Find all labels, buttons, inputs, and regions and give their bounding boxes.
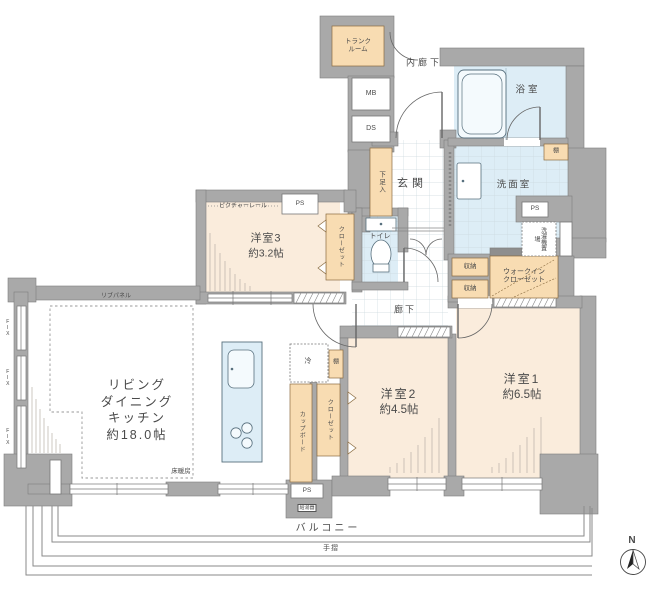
mb-label: MB [366,90,377,98]
trunk-room-label: トランクルーム [345,38,371,54]
bedroom2-size: 約4.5帖 [380,404,419,418]
balcony-label: バルコニー [296,523,361,535]
walk-in-closet-label: ウォークインクローゼット [503,269,545,286]
toilet-label: トイレ [370,233,391,241]
rib-panel-label: リブパネル [101,293,131,300]
corner-slot [50,460,61,494]
ldk-label: リビングダイニング キッチン約18.0帖 [101,377,174,443]
storage-label-2: 収納 [464,285,477,293]
bedroom1-name: 洋室1 [504,372,541,386]
water-heater-label: 給湯器 [297,504,316,512]
compass [621,550,646,575]
stove-burners [242,438,252,448]
fix-window-label-2: FIX [4,367,10,389]
inner-corridor-label: 内廊下 [406,58,442,69]
shoe-cabinet-label: 下足入 [377,162,384,202]
bedroom3-size: 約3.2帖 [248,248,284,261]
front-door-arc [396,92,442,138]
fix-window-label-1: FIX [4,317,10,339]
fridge-label: 冷 [305,358,312,366]
shelf-upper-label: 棚 [553,148,559,155]
bedroom1-size: 約6.5帖 [503,389,542,403]
shelf-lower-label: 棚 [333,359,339,366]
handrail-label: 手摺 [323,545,339,553]
bedroom2-name: 洋室2 [381,387,418,401]
floor-plan: トランクルーム 内廊下 MB DS 玄関 下足入 浴室 洗面室 棚 PS 洗濯機… [0,0,650,600]
bathtub [458,68,506,140]
closet-bedroom3-label: クローゼット [337,222,344,272]
storage-label-1: 収納 [464,263,477,271]
entrance-label: 玄関 [397,177,427,190]
ds-label: DS [366,125,376,133]
floor-plan-svg [0,0,650,600]
closet-bedroom2-label: クローゼット [326,395,333,445]
bedroom3-name: 洋室3 [250,232,281,245]
picture-rail-label: ピクチャーレール [219,203,267,210]
kitchen-island [222,342,262,462]
cupboard-label: カップボード [298,402,305,462]
counter-strip [560,222,572,256]
ps-bedroom3-label: PS [296,200,305,208]
ps-washroom-label: PS [531,205,540,213]
ps-bottom-label: PS [303,487,312,495]
bathroom-label: 浴室 [515,84,540,95]
fix-window-label-3: FIX [4,426,10,448]
washbasin [457,163,481,199]
washroom-label: 洗面室 [497,179,532,190]
compass-north-label: N [628,535,635,547]
hall-label: 廊下 [394,305,416,316]
floor-heating-label: 床暖房 [171,468,191,476]
washer-space-label: 洗濯機置場 [532,226,545,252]
